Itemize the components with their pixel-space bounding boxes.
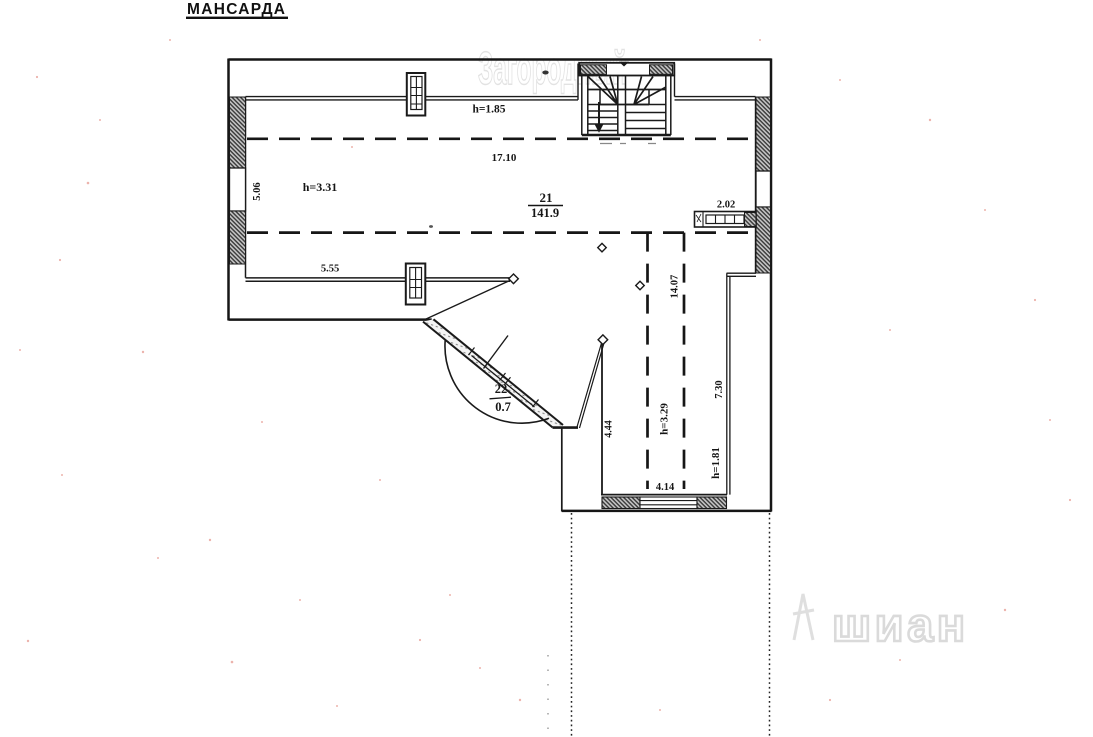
svg-text:17.10: 17.10 (492, 152, 517, 164)
svg-text:21: 21 (540, 190, 553, 205)
svg-text:5.55: 5.55 (321, 264, 339, 275)
svg-text:22: 22 (495, 382, 508, 396)
svg-text:141.9: 141.9 (531, 206, 559, 220)
svg-text:5.06: 5.06 (252, 182, 263, 200)
svg-text:h=3.31: h=3.31 (303, 180, 338, 194)
svg-text:7.30: 7.30 (714, 380, 725, 398)
svg-text:14.07: 14.07 (670, 275, 681, 299)
svg-text:0.7: 0.7 (495, 400, 511, 414)
svg-text:4.44: 4.44 (604, 420, 615, 438)
svg-text:шиан: шиан (832, 598, 969, 651)
svg-text:МАНСАРДА: МАНСАРДА (187, 1, 286, 18)
svg-text:h=1.81: h=1.81 (710, 447, 722, 479)
svg-text:2.02: 2.02 (717, 200, 735, 211)
svg-text:4.14: 4.14 (656, 482, 675, 493)
svg-text:h=3.29: h=3.29 (659, 403, 671, 435)
svg-text:h=1.85: h=1.85 (472, 104, 505, 116)
